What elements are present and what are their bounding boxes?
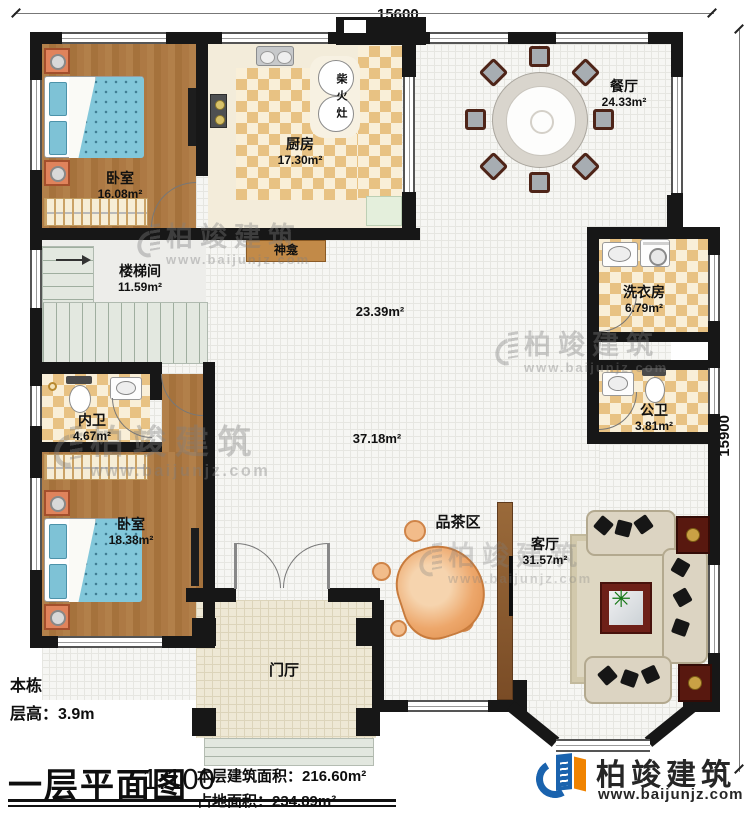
wall-ensuite-top <box>30 362 162 374</box>
living-label: 客厅 31.57m² <box>505 536 585 567</box>
foyer-column-ne <box>356 618 380 646</box>
laundry-sink <box>602 242 638 267</box>
wall-kitchen-right-bottom <box>402 192 416 240</box>
wall-foyer-tea-divider <box>372 600 384 712</box>
floorplan-canvas: 15600 15900 <box>0 0 750 817</box>
nightstand <box>44 490 70 516</box>
footprint-line: 占地面积：234.89m² <box>197 790 336 811</box>
window <box>222 32 328 44</box>
wall-bedroom1-right <box>196 44 208 176</box>
bedroom2-label: 卧室 18.38m² <box>91 516 171 547</box>
wall-kitchen-right-top <box>402 44 416 77</box>
nightstand <box>44 160 70 186</box>
foyer-column-sw <box>192 708 216 736</box>
fridge <box>366 196 402 226</box>
dining-chair <box>529 172 550 193</box>
toilet-tank <box>66 376 92 384</box>
entry-door-left-leaf <box>234 543 237 589</box>
washing-machine <box>640 239 670 267</box>
window <box>708 255 720 321</box>
stair-direction-arrow <box>56 259 84 261</box>
side-table <box>678 664 712 702</box>
floor-area-line: 本层建筑面积：216.60m² <box>197 765 366 786</box>
toilet-bowl <box>645 377 665 403</box>
window <box>408 700 488 712</box>
window <box>671 77 683 193</box>
wall-step-stub <box>667 195 683 227</box>
dining-label: 餐厅 24.33m² <box>584 78 664 109</box>
kitchen-pass-window <box>403 77 415 192</box>
bathroom-sink <box>110 377 142 400</box>
window <box>58 636 162 648</box>
window <box>708 565 720 653</box>
window <box>30 80 42 170</box>
window <box>62 32 166 44</box>
entry-steps <box>204 738 374 766</box>
window <box>30 250 42 308</box>
hall-lower-area-label: 37.18m² <box>337 431 417 447</box>
wall-pubbath-bottom <box>587 432 720 444</box>
window <box>708 368 720 414</box>
kitchen-label: 厨房 17.30m² <box>260 136 340 167</box>
wall-entry-left <box>186 588 236 602</box>
shrine-label: 神龛 <box>246 243 326 257</box>
toilet-bowl <box>69 385 91 413</box>
kitchen-stove <box>210 94 227 128</box>
hall-upper-area-label: 23.39m² <box>340 304 420 320</box>
watermark-logo-icon <box>138 224 160 258</box>
company-logo-icon <box>536 750 592 806</box>
nightstand <box>44 48 70 74</box>
dining-chair <box>593 109 614 130</box>
bedroom1-label: 卧室 16.08m² <box>80 170 160 201</box>
dining-chair <box>465 109 486 130</box>
entry-door-right-leaf <box>327 543 330 589</box>
tea-stool <box>372 562 391 581</box>
window <box>430 32 508 44</box>
dining-table <box>492 72 588 168</box>
wall-laundry-top <box>587 227 720 239</box>
nightstand <box>44 604 70 630</box>
foyer-column-se <box>356 708 380 736</box>
wardrobe <box>44 198 148 226</box>
floor-drain <box>48 382 57 391</box>
bed <box>44 76 144 158</box>
watermark-logo-icon <box>496 332 518 366</box>
floor-height-line: 层高：3.9m <box>10 700 94 724</box>
right-dimension-line <box>739 30 740 772</box>
ensuite-label: 内卫 4.67m² <box>52 412 132 443</box>
kitchen-tile-right <box>358 46 402 198</box>
stair-arrow-head <box>82 255 91 265</box>
window <box>30 386 42 426</box>
chimney-flue <box>344 20 366 33</box>
window <box>30 478 42 570</box>
tea-stool <box>390 620 407 637</box>
foyer-label: 门厅 <box>244 662 324 680</box>
watermark: 柏竣建筑 www.baijunjz.com <box>496 332 668 377</box>
kitchen-sink <box>256 46 294 66</box>
company-logo-url: www.baijunjz.com <box>598 786 743 803</box>
watermark-logo-icon <box>420 543 442 577</box>
tea-area-label: 品茶区 <box>423 514 493 532</box>
foyer-column-nw <box>192 618 216 646</box>
bedroom2-tv <box>191 528 199 586</box>
dining-chair <box>529 46 550 67</box>
stair-label: 楼梯间 11.59m² <box>95 263 185 294</box>
window <box>556 32 648 44</box>
bedroom1-tv <box>188 88 196 146</box>
stair-flight-lower <box>42 302 208 364</box>
wood-stove-label: 柴火灶 <box>327 66 347 130</box>
coffee-table-plant: ✳ <box>611 588 631 612</box>
wall-suite-right <box>203 362 215 648</box>
side-table <box>676 516 710 554</box>
bay-window <box>556 739 650 752</box>
laundry-label: 洗衣房 6.79m² <box>604 284 684 315</box>
pubbath-label: 公卫 3.81m² <box>614 402 694 433</box>
top-dimension-line <box>14 13 714 14</box>
